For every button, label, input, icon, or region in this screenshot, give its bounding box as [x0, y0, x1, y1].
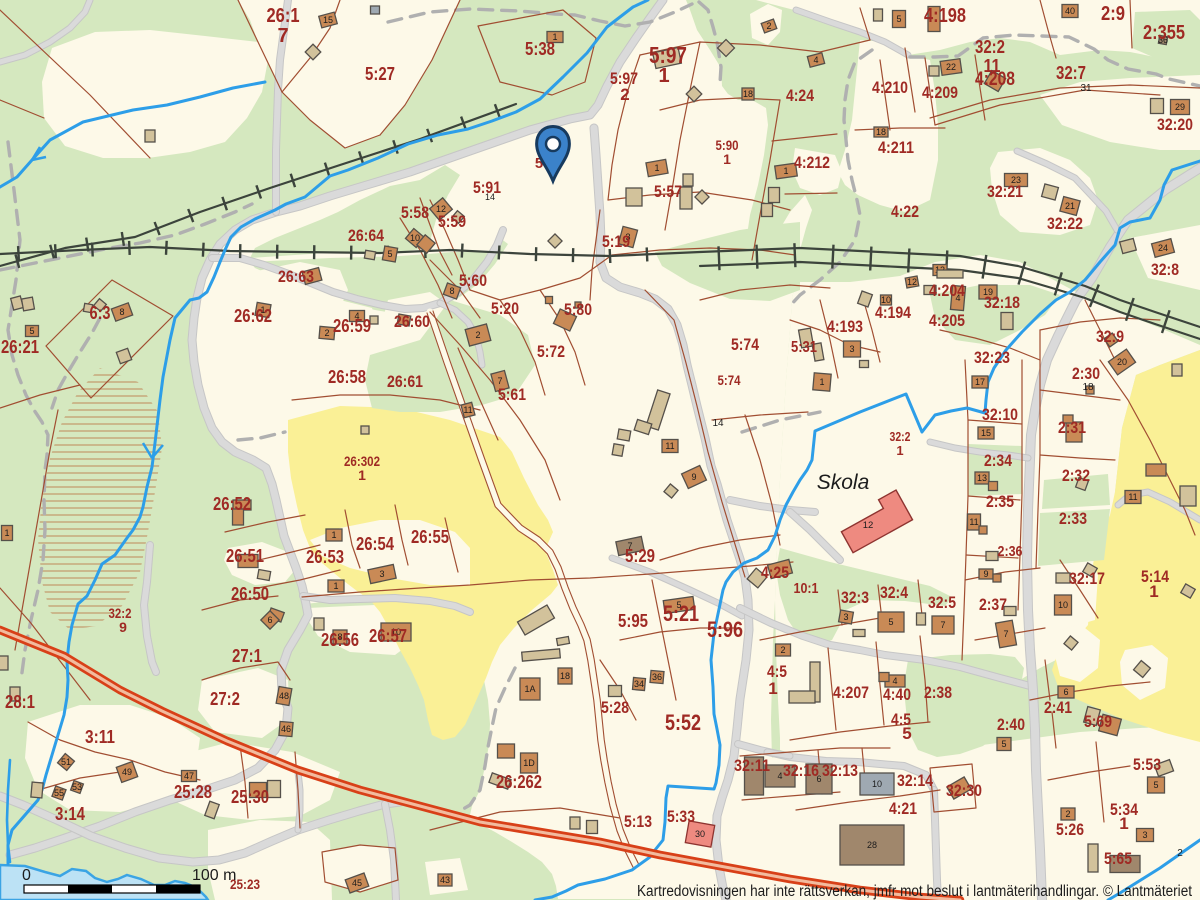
svg-text:26:52: 26:52 — [213, 494, 251, 514]
svg-text:26:58: 26:58 — [328, 367, 366, 387]
svg-text:30: 30 — [695, 829, 705, 839]
svg-text:32:2: 32:2 — [890, 429, 911, 444]
svg-text:4: 4 — [813, 55, 818, 65]
svg-text:26:1: 26:1 — [267, 5, 300, 27]
svg-text:2:30: 2:30 — [1072, 364, 1100, 383]
svg-text:15: 15 — [323, 15, 333, 25]
svg-text:5:53: 5:53 — [1133, 755, 1161, 774]
svg-text:2: 2 — [475, 330, 480, 340]
svg-text:5: 5 — [896, 14, 901, 24]
svg-text:5:57: 5:57 — [654, 182, 682, 201]
svg-text:22: 22 — [946, 62, 956, 72]
svg-text:2:355: 2:355 — [1143, 22, 1185, 44]
svg-text:26:56: 26:56 — [321, 630, 359, 650]
svg-text:4:210: 4:210 — [872, 78, 908, 97]
svg-text:5:20: 5:20 — [491, 299, 519, 318]
svg-text:11: 11 — [665, 441, 674, 451]
svg-text:2:33: 2:33 — [1059, 509, 1087, 528]
svg-text:10: 10 — [872, 779, 882, 789]
svg-text:1: 1 — [333, 581, 338, 591]
svg-text:5: 5 — [902, 724, 911, 743]
svg-text:4:209: 4:209 — [922, 83, 958, 102]
svg-text:32:17: 32:17 — [1069, 569, 1105, 588]
svg-text:2:36: 2:36 — [998, 543, 1023, 560]
svg-text:26:63: 26:63 — [278, 267, 314, 286]
svg-text:2:37: 2:37 — [979, 595, 1007, 614]
svg-text:2: 2 — [324, 328, 329, 338]
svg-text:4:25: 4:25 — [761, 563, 789, 582]
svg-text:32:2: 32:2 — [975, 37, 1005, 57]
svg-text:28:1: 28:1 — [5, 692, 35, 712]
svg-text:45: 45 — [352, 878, 362, 888]
svg-text:32:20: 32:20 — [1157, 115, 1193, 134]
svg-text:9: 9 — [119, 619, 127, 635]
svg-text:5:95: 5:95 — [618, 611, 648, 631]
svg-text:4:212: 4:212 — [794, 153, 830, 172]
svg-text:26:59: 26:59 — [333, 316, 371, 336]
svg-text:2: 2 — [780, 645, 785, 655]
svg-text:5:52: 5:52 — [665, 710, 701, 735]
svg-text:26:55: 26:55 — [411, 527, 449, 547]
svg-text:18: 18 — [876, 127, 886, 137]
svg-text:5:74: 5:74 — [731, 335, 759, 354]
svg-text:10: 10 — [1058, 600, 1068, 610]
svg-text:5:31: 5:31 — [791, 339, 817, 356]
svg-text:5:65: 5:65 — [1104, 849, 1132, 868]
svg-text:5:72: 5:72 — [537, 342, 565, 361]
svg-text:14: 14 — [485, 192, 495, 202]
svg-text:26:54: 26:54 — [356, 534, 394, 554]
svg-text:2:41: 2:41 — [1044, 698, 1072, 717]
svg-text:100 m: 100 m — [192, 867, 236, 884]
svg-text:6:3: 6:3 — [90, 303, 111, 323]
svg-text:5:59: 5:59 — [438, 212, 466, 231]
svg-text:3:11: 3:11 — [85, 727, 115, 747]
svg-text:11: 11 — [463, 405, 472, 415]
svg-text:26:64: 26:64 — [348, 226, 384, 245]
svg-text:12: 12 — [863, 520, 874, 531]
svg-text:27:1: 27:1 — [232, 646, 262, 666]
svg-text:2:34: 2:34 — [984, 451, 1012, 470]
svg-text:2:40: 2:40 — [997, 715, 1025, 734]
svg-text:12: 12 — [907, 277, 917, 287]
svg-text:5:69: 5:69 — [1084, 712, 1112, 731]
svg-text:4:211: 4:211 — [878, 138, 914, 157]
svg-text:53: 53 — [72, 782, 82, 792]
svg-text:8: 8 — [449, 286, 454, 296]
svg-text:55: 55 — [54, 788, 64, 798]
svg-text:1: 1 — [331, 530, 336, 540]
svg-text:43: 43 — [440, 875, 450, 885]
svg-text:4:24: 4:24 — [786, 86, 814, 105]
svg-text:2:32: 2:32 — [1062, 466, 1090, 485]
svg-text:7: 7 — [277, 25, 288, 47]
svg-text:26:62: 26:62 — [234, 306, 272, 326]
svg-text:5:80: 5:80 — [564, 300, 592, 319]
svg-text:2: 2 — [1065, 809, 1070, 819]
svg-text:3: 3 — [379, 569, 384, 579]
svg-text:21: 21 — [1065, 201, 1075, 211]
svg-text:32:21: 32:21 — [987, 182, 1023, 201]
svg-text:3: 3 — [843, 612, 848, 622]
svg-text:5:60: 5:60 — [459, 271, 487, 290]
svg-text:1: 1 — [358, 467, 366, 483]
svg-text:4:207: 4:207 — [833, 683, 869, 702]
svg-text:25:28: 25:28 — [174, 782, 212, 802]
svg-text:5:38: 5:38 — [525, 39, 555, 59]
svg-text:10: 10 — [410, 233, 420, 243]
svg-text:1: 1 — [819, 377, 824, 387]
svg-text:3:14: 3:14 — [55, 804, 85, 824]
svg-text:1: 1 — [768, 679, 777, 698]
svg-text:32:18: 32:18 — [984, 293, 1020, 312]
svg-text:24: 24 — [1158, 243, 1168, 253]
svg-text:1: 1 — [1149, 582, 1158, 601]
svg-text:2:9: 2:9 — [1101, 3, 1125, 25]
svg-text:5:96: 5:96 — [707, 617, 743, 642]
svg-text:18: 18 — [1082, 382, 1094, 393]
svg-text:5:61: 5:61 — [498, 385, 526, 404]
svg-text:1: 1 — [783, 166, 788, 176]
svg-text:1D: 1D — [523, 758, 535, 768]
svg-text:9: 9 — [691, 472, 696, 482]
svg-text:32:22: 32:22 — [1047, 214, 1083, 233]
svg-text:2: 2 — [620, 85, 629, 104]
svg-text:5: 5 — [1001, 739, 1006, 749]
svg-text:18: 18 — [743, 89, 753, 99]
svg-text:4:22: 4:22 — [891, 202, 919, 221]
svg-text:7: 7 — [1003, 629, 1008, 639]
svg-text:4:204: 4:204 — [929, 281, 965, 300]
svg-text:4:193: 4:193 — [827, 317, 863, 336]
svg-text:5:33: 5:33 — [667, 807, 695, 826]
svg-text:25:30: 25:30 — [231, 787, 269, 807]
svg-text:26:53: 26:53 — [306, 547, 344, 567]
svg-text:32:5: 32:5 — [928, 593, 956, 612]
svg-text:4:21: 4:21 — [889, 799, 917, 818]
svg-text:3: 3 — [849, 344, 854, 354]
svg-text:32:10: 32:10 — [982, 405, 1018, 424]
svg-text:32:8: 32:8 — [1151, 260, 1179, 279]
svg-text:Skola: Skola — [817, 471, 870, 494]
svg-text:28: 28 — [867, 840, 877, 850]
svg-text:26:60: 26:60 — [394, 312, 430, 331]
svg-text:0: 0 — [22, 867, 31, 884]
svg-text:1: 1 — [1119, 814, 1128, 833]
svg-text:4:40: 4:40 — [883, 685, 911, 704]
svg-text:48: 48 — [279, 691, 289, 701]
svg-text:8: 8 — [119, 307, 124, 317]
svg-text:32:13: 32:13 — [822, 761, 858, 780]
svg-text:5: 5 — [387, 249, 392, 259]
svg-text:5:27: 5:27 — [365, 64, 395, 84]
svg-text:26:21: 26:21 — [1, 337, 39, 357]
svg-text:34: 34 — [634, 679, 644, 689]
svg-text:5:21: 5:21 — [663, 601, 699, 626]
svg-text:32:4: 32:4 — [880, 583, 908, 602]
svg-text:1: 1 — [723, 151, 731, 167]
svg-text:32:11: 32:11 — [734, 756, 770, 775]
svg-text:26:61: 26:61 — [387, 372, 423, 391]
svg-text:20: 20 — [1117, 357, 1127, 367]
svg-text:5:13: 5:13 — [624, 812, 652, 831]
svg-text:5: 5 — [1153, 780, 1158, 790]
svg-text:29: 29 — [1175, 102, 1185, 112]
svg-text:36: 36 — [652, 672, 662, 682]
svg-text:32:3: 32:3 — [841, 588, 869, 607]
svg-text:3: 3 — [1142, 830, 1147, 840]
svg-text:6: 6 — [1063, 687, 1068, 697]
svg-text:4:208: 4:208 — [975, 69, 1015, 90]
svg-text:2:35: 2:35 — [986, 492, 1014, 511]
svg-text:10:1: 10:1 — [794, 580, 819, 597]
svg-text:26:50: 26:50 — [231, 584, 269, 604]
svg-text:32:30: 32:30 — [946, 781, 982, 800]
svg-text:32:14: 32:14 — [897, 771, 933, 790]
svg-text:4:194: 4:194 — [875, 303, 911, 322]
svg-text:2: 2 — [1177, 848, 1183, 859]
svg-text:5:58: 5:58 — [401, 203, 429, 222]
svg-text:32:23: 32:23 — [974, 348, 1010, 367]
svg-text:26:262: 26:262 — [496, 772, 542, 792]
svg-text:5:29: 5:29 — [625, 546, 655, 566]
svg-text:2:38: 2:38 — [924, 683, 952, 702]
svg-text:27:2: 27:2 — [210, 689, 240, 709]
svg-text:31: 31 — [1080, 83, 1092, 94]
svg-text:1: 1 — [654, 163, 659, 173]
svg-text:32:16: 32:16 — [783, 761, 819, 780]
svg-text:5: 5 — [29, 326, 34, 336]
svg-text:2:31: 2:31 — [1058, 418, 1086, 437]
svg-text:1: 1 — [658, 65, 669, 87]
svg-text:11: 11 — [1128, 492, 1137, 502]
svg-text:15: 15 — [981, 428, 991, 438]
svg-text:18: 18 — [560, 671, 570, 681]
svg-text:17: 17 — [975, 377, 985, 387]
svg-text:4:198: 4:198 — [924, 5, 966, 27]
svg-text:1: 1 — [896, 443, 903, 458]
svg-text:49: 49 — [122, 767, 132, 777]
svg-text:1: 1 — [4, 528, 9, 538]
svg-text:4: 4 — [777, 771, 782, 781]
svg-text:7: 7 — [940, 620, 945, 630]
svg-text:11: 11 — [969, 517, 978, 527]
svg-text:51: 51 — [61, 757, 71, 767]
svg-text:5:19: 5:19 — [602, 232, 630, 251]
svg-text:47: 47 — [184, 771, 194, 781]
svg-text:32:7: 32:7 — [1056, 63, 1086, 83]
svg-text:26:57: 26:57 — [369, 626, 407, 646]
svg-text:14: 14 — [712, 418, 724, 429]
svg-text:6: 6 — [267, 615, 272, 625]
svg-text:5:74: 5:74 — [718, 372, 741, 388]
svg-text:5:26: 5:26 — [1056, 820, 1084, 839]
svg-text:46: 46 — [281, 724, 291, 734]
svg-text:9: 9 — [983, 569, 988, 579]
svg-text:26:51: 26:51 — [226, 546, 264, 566]
svg-text:5:28: 5:28 — [601, 698, 629, 717]
svg-text:4:205: 4:205 — [929, 311, 965, 330]
svg-text:5: 5 — [888, 617, 893, 627]
svg-text:32:9: 32:9 — [1096, 327, 1124, 346]
svg-text:2: 2 — [766, 21, 771, 31]
svg-text:Kartredovisningen har inte rät: Kartredovisningen har inte rättsverkan, … — [637, 883, 1193, 900]
svg-text:40: 40 — [1065, 6, 1075, 16]
svg-text:1A: 1A — [524, 684, 535, 694]
svg-text:13: 13 — [977, 473, 987, 483]
